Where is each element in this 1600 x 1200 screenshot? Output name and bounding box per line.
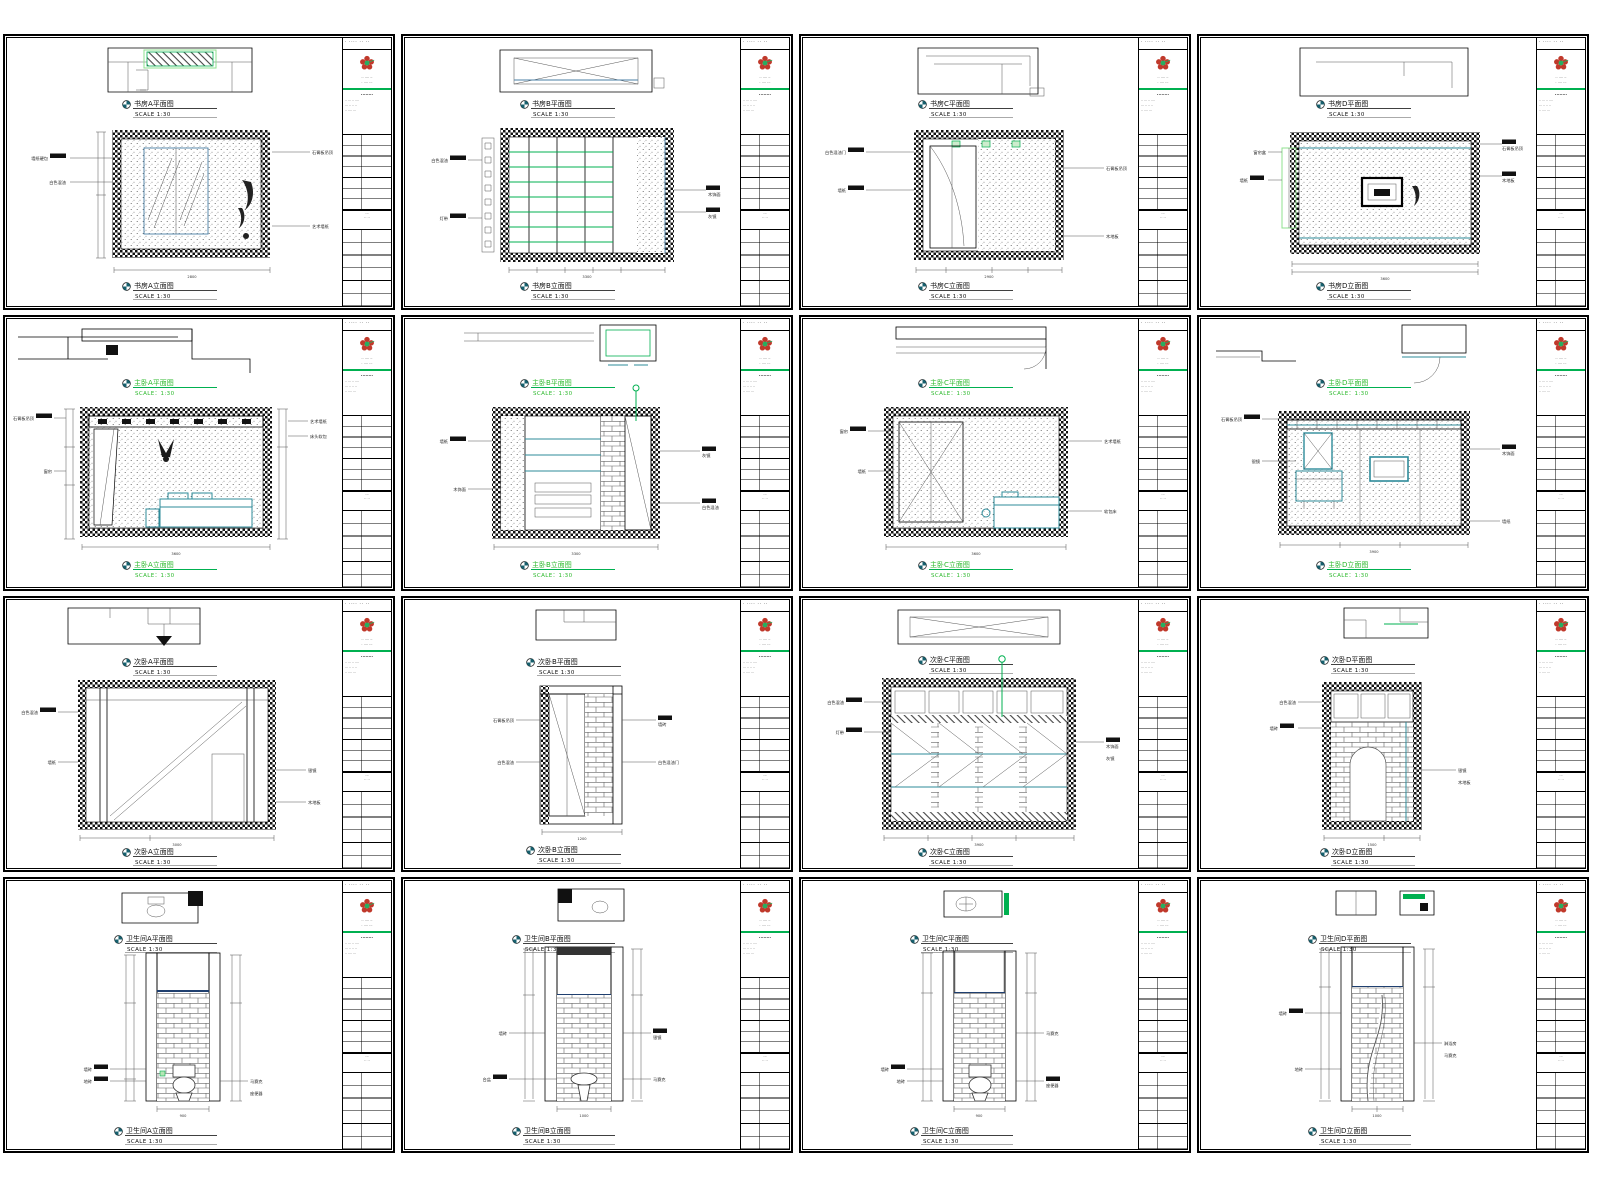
svg-text:书房D平面图: 书房D平面图	[1328, 99, 1368, 108]
sheet-title-bottom: 卫生间B立面图SCALE 1:30	[513, 1126, 615, 1145]
titleblock-mid: ··· ·· ··	[1537, 491, 1585, 511]
titleblock-notes: ·· ··· ·· ···· ··· ·· ·· ·· ·· ···· ···	[1537, 660, 1585, 697]
annotation: 银镜	[308, 767, 317, 774]
flower-logo-icon	[757, 898, 773, 914]
annotation: 银镜	[1458, 767, 1467, 774]
annotation: 白色混油	[702, 504, 719, 511]
sheet-title-bottom: 主卧A立面图SCALE：1:30	[123, 560, 217, 579]
titleblock-header: · ···· ·· ··	[741, 319, 789, 331]
sheet-r2c3: 主卧C平面图SCALE：1:30 窗帘 墙纸 艺术墙纸 软包床 3600 主卧C…	[799, 315, 1191, 591]
plan-drawing	[944, 891, 1009, 917]
drawing-r3c4: 次卧D平面图SCALE 1:30 白色混油 墙砖 银镜 木地板 1500 次卧D…	[1204, 602, 1536, 868]
annotation: 马赛克	[653, 1076, 666, 1083]
titleblock-table-lower	[1537, 511, 1585, 587]
svg-text:次卧D立面图: 次卧D立面图	[1332, 847, 1372, 856]
annotation: 木地板	[1458, 779, 1471, 786]
titleblock-section: ········	[1139, 372, 1187, 379]
titleblock-section: ········	[343, 934, 391, 941]
sheet-r2c4: 主卧D平面图SCALE：1:30 石膏板吊顶 银镜 木饰面 墙纸 3900 主卧…	[1197, 315, 1589, 591]
company-text: ·· ···· ·· · ···· ···	[741, 638, 789, 649]
elevation-drawing	[112, 130, 270, 258]
company-text: ·· ···· ·· · ···· ···	[1139, 357, 1187, 368]
dimension-line	[509, 267, 665, 273]
sheet-r4c2: 卫生间B平面图SCALE 1:30 墙砖 台盆 银镜 马赛克 1000 卫生间B…	[401, 877, 793, 1153]
logo-area	[1537, 612, 1585, 638]
svg-text:书房A平面图: 书房A平面图	[134, 99, 174, 108]
dimension-line	[114, 267, 270, 273]
titleblock-section: ········	[1139, 91, 1187, 98]
sheet-title-top: 主卧A平面图SCALE：1:30	[123, 378, 217, 397]
flower-logo-icon	[757, 55, 773, 71]
titleblock-table-lower	[741, 230, 789, 306]
titleblock-header: · ···· ·· ··	[343, 38, 391, 50]
annotation: 灰镜	[1106, 755, 1115, 762]
dimension-value: 3600	[971, 552, 981, 556]
svg-text:SCALE 1:30: SCALE 1:30	[533, 112, 569, 118]
titleblock-notes: ·· ··· ·· ···· ··· ·· ·· ·· ·· ···· ···	[1139, 98, 1187, 135]
sheet-title-top: 主卧D平面图SCALE：1:30	[1317, 378, 1411, 397]
title-block: · ···· ·· ·· ·· ···· ·· · ···· ··· ·····…	[342, 600, 391, 868]
svg-text:次卧C平面图: 次卧C平面图	[930, 655, 970, 664]
titleblock-mid: ··· ·· ··	[343, 1053, 391, 1073]
titleblock-table-lower	[1139, 230, 1187, 306]
sheet-title-top: 书房C平面图SCALE 1:30	[919, 99, 1013, 118]
annotation: 座便器	[1046, 1082, 1059, 1089]
svg-text:次卧D平面图: 次卧D平面图	[1332, 655, 1372, 664]
titleblock-mid: ··· ·· ··	[741, 1053, 789, 1073]
sheet-border: 次卧C平面图SCALE 1:30 白色混油 灯带 木饰面 灰镜 3900 次卧C…	[802, 599, 1188, 869]
drawing-r2c4: 主卧D平面图SCALE：1:30 石膏板吊顶 银镜 木饰面 墙纸 3900 主卧…	[1204, 321, 1536, 587]
title-block: · ···· ·· ·· ·· ···· ·· · ···· ··· ·····…	[1138, 881, 1187, 1149]
flower-logo-icon	[359, 617, 375, 633]
logo-area	[343, 893, 391, 919]
annotation: 墙砖	[1270, 725, 1278, 732]
dimension-line	[557, 1106, 611, 1112]
svg-text:SCALE 1:30: SCALE 1:30	[923, 1139, 959, 1145]
title-block: · ···· ·· ·· ·· ···· ·· · ···· ··· ·····…	[1138, 600, 1187, 868]
dimension-line	[916, 267, 1062, 273]
titleblock-table-upper	[741, 697, 789, 773]
titleblock-section: ········	[1139, 934, 1187, 941]
svg-text:SCALE 1:30: SCALE 1:30	[931, 860, 967, 866]
annotation: 墙砖	[658, 721, 666, 728]
sheet-r2c2: 主卧B平面图SCALE：1:30 墙纸 木饰面 灰镜 白色混油 3300 主卧B…	[401, 315, 793, 591]
logo-area	[343, 331, 391, 357]
titleblock-table-upper	[1537, 697, 1585, 773]
annotation: 白色混油	[21, 709, 38, 716]
drawing-r4c3: 卫生间C平面图SCALE 1:30 墙砖 地砖 马赛克 座便器 900 卫生间C…	[806, 883, 1138, 1149]
svg-text:次卧A平面图: 次卧A平面图	[134, 657, 174, 666]
sheet-r2c1: 主卧A平面图SCALE：1:30 石膏板吊顶 窗帘 艺术墙纸 床头软包 3600…	[3, 315, 395, 591]
dimension-line	[494, 544, 658, 550]
sheet-border: 书房C平面图SCALE 1:30 白色混油门 墙纸 石膏板吊顶 木地板 2900…	[802, 37, 1188, 307]
titleblock-section: ········	[741, 934, 789, 941]
green-divider	[1139, 931, 1187, 933]
titleblock-table-upper	[1537, 416, 1585, 492]
titleblock-table-upper	[343, 978, 391, 1054]
titleblock-table-upper	[343, 697, 391, 773]
company-text: ·· ···· ·· · ···· ···	[343, 638, 391, 649]
sheet-title-bottom: 主卧D立面图SCALE：1:30	[1317, 560, 1411, 579]
title-block: · ···· ·· ·· ·· ···· ·· · ···· ··· ·····…	[342, 38, 391, 306]
company-text: ·· ···· ·· · ···· ···	[741, 919, 789, 930]
svg-text:SCALE 1:30: SCALE 1:30	[923, 947, 959, 953]
plan-drawing	[1216, 325, 1466, 383]
titleblock-header: · ···· ·· ··	[343, 881, 391, 893]
titleblock-header: · ···· ·· ··	[1139, 600, 1187, 612]
svg-text:SCALE 1:30: SCALE 1:30	[539, 670, 575, 676]
annotation: 灰镜	[702, 452, 711, 459]
annotation: 石膏板吊顶	[1221, 416, 1243, 423]
dimension-line	[1324, 835, 1420, 841]
sheet-title-bottom: 书房D立面图SCALE 1:30	[1317, 281, 1411, 300]
svg-text:SCALE 1:30: SCALE 1:30	[1329, 112, 1365, 118]
sheet-title-bottom: 卫生间C立面图SCALE 1:30	[911, 1126, 1013, 1145]
flower-logo-icon	[359, 55, 375, 71]
elevation-drawing	[884, 407, 1068, 537]
logo-area	[1537, 893, 1585, 919]
logo-area	[1537, 50, 1585, 76]
plan-drawing	[558, 889, 624, 921]
dimension-value: 2900	[984, 275, 994, 279]
drawing-r1c2: 书房B平面图SCALE 1:30 白色混油 灯带 木饰面 灰镜 3300 书房B…	[408, 40, 740, 306]
flower-logo-icon	[1553, 898, 1569, 914]
annotation: 木饰面	[1502, 450, 1515, 457]
titleblock-notes: ·· ··· ·· ···· ··· ·· ·· ·· ·· ···· ···	[1139, 379, 1187, 416]
flower-logo-icon	[1553, 55, 1569, 71]
svg-text:SCALE：1:30: SCALE：1:30	[135, 391, 175, 397]
annotation: 墙纸	[440, 438, 449, 445]
annotation: 银镜	[1252, 458, 1261, 465]
svg-text:次卧B立面图: 次卧B立面图	[538, 845, 578, 854]
company-text: ·· ···· ·· · ···· ···	[1537, 919, 1585, 930]
titleblock-notes: ·· ··· ·· ···· ··· ·· ·· ·· ·· ···· ···	[343, 941, 391, 978]
svg-text:SCALE 1:30: SCALE 1:30	[931, 668, 967, 674]
titleblock-notes: ·· ··· ·· ···· ··· ·· ·· ·· ·· ···· ···	[741, 98, 789, 135]
titleblock-mid: ··· ·· ··	[741, 491, 789, 511]
titleblock-section: ········	[1537, 653, 1585, 660]
company-text: ·· ···· ·· · ···· ···	[343, 357, 391, 368]
titleblock-table-upper	[343, 416, 391, 492]
dimension-line	[1292, 261, 1478, 275]
drawing-r1c4: 书房D平面图SCALE 1:30 窗帘盒 墙纸 石膏板吊顶 木地板 3600 书…	[1204, 40, 1536, 306]
annotation: 软包床	[1104, 508, 1117, 515]
flower-logo-icon	[1155, 898, 1171, 914]
titleblock-table-lower	[343, 511, 391, 587]
elevation-drawing	[1282, 132, 1480, 254]
annotation: 艺术墙纸	[310, 418, 328, 425]
logo-area	[1139, 50, 1187, 76]
sheet-title-top: 卫生间D平面图SCALE 1:30	[1309, 934, 1411, 953]
title-block: · ···· ·· ·· ·· ···· ·· · ···· ··· ·····…	[1138, 319, 1187, 587]
green-divider	[741, 369, 789, 371]
sheet-title-bottom: 次卧A立面图SCALE 1:30	[123, 847, 217, 866]
annotation: 墙纸	[1502, 518, 1511, 525]
sheet-title-bottom: 书房A立面图SCALE 1:30	[123, 281, 217, 300]
titleblock-header: · ···· ·· ··	[1139, 319, 1187, 331]
svg-text:SCALE 1:30: SCALE 1:30	[135, 860, 171, 866]
annotation: 石膏板吊顶	[493, 717, 515, 724]
svg-text:书房B平面图: 书房B平面图	[532, 99, 572, 108]
green-divider	[741, 931, 789, 933]
annotation: 窗帘盒	[1253, 149, 1266, 156]
sheet-r3c4: 次卧D平面图SCALE 1:30 白色混油 墙砖 银镜 木地板 1500 次卧D…	[1197, 596, 1589, 872]
company-text: ·· ···· ·· · ···· ···	[1139, 919, 1187, 930]
sheet-r1c1: 书房A平面图SCALE 1:30 墙纸硬包 白色混油 石膏板吊顶 艺术墙纸 28…	[3, 34, 395, 310]
annotation: 墙砖	[881, 1066, 889, 1073]
elevation-drawing	[146, 953, 220, 1101]
sheet-title-bottom: 次卧B立面图SCALE 1:30	[527, 845, 621, 864]
titleblock-mid: ··· ·· ··	[343, 491, 391, 511]
annotation: 地砖	[1295, 1066, 1303, 1073]
titleblock-table-upper	[741, 135, 789, 211]
title-block: · ···· ·· ·· ·· ···· ·· · ···· ··· ·····…	[1138, 38, 1187, 306]
company-text: ·· ···· ·· · ···· ···	[1537, 76, 1585, 87]
annotation: 白色混油	[1279, 699, 1296, 706]
plan-drawing	[500, 50, 664, 92]
annotation: 石膏板吊顶	[1106, 165, 1128, 172]
titleblock-table-lower	[1537, 792, 1585, 868]
sheet-r4c4: 卫生间D平面图SCALE 1:30 墙砖 地砖 淋浴房 马赛克 1000 卫生间…	[1197, 877, 1589, 1153]
green-divider	[343, 650, 391, 652]
titleblock-notes: ·· ··· ·· ···· ··· ·· ·· ·· ·· ···· ···	[1537, 379, 1585, 416]
dimension-line	[1280, 542, 1468, 548]
title-block: · ···· ·· ·· ·· ···· ·· · ···· ··· ·····…	[342, 881, 391, 1149]
annotation: 石膏板吊顶	[1502, 145, 1524, 152]
sheet-border: 卫生间C平面图SCALE 1:30 墙砖 地砖 马赛克 座便器 900 卫生间C…	[802, 880, 1188, 1150]
plan-drawing	[108, 48, 252, 92]
logo-area	[343, 612, 391, 638]
titleblock-mid: ··· ·· ··	[343, 772, 391, 792]
titleblock-section: ········	[343, 372, 391, 379]
title-block: · ···· ·· ·· ·· ···· ·· · ···· ··· ·····…	[1536, 600, 1585, 868]
titleblock-section: ········	[741, 372, 789, 379]
sheet-title-top: 次卧A平面图SCALE 1:30	[123, 657, 217, 676]
annotation: 墙纸	[48, 759, 57, 766]
titleblock-notes: ·· ··· ·· ···· ··· ·· ·· ·· ·· ···· ···	[343, 98, 391, 135]
logo-area	[1537, 331, 1585, 357]
annotation: 马赛克	[1046, 1030, 1059, 1037]
sheet-r1c2: 书房B平面图SCALE 1:30 白色混油 灯带 木饰面 灰镜 3300 书房B…	[401, 34, 793, 310]
company-text: ·· ···· ·· · ···· ···	[343, 919, 391, 930]
titleblock-section: ········	[343, 653, 391, 660]
annotation: 白色混油	[431, 157, 448, 164]
sheet-border: 书房B平面图SCALE 1:30 白色混油 灯带 木饰面 灰镜 3300 书房B…	[404, 37, 790, 307]
svg-text:次卧C立面图: 次卧C立面图	[930, 847, 970, 856]
dimension-line	[1352, 1106, 1403, 1112]
plan-drawing	[1300, 48, 1468, 96]
flower-logo-icon	[1553, 336, 1569, 352]
dimension-value: 1000	[579, 1114, 589, 1118]
titleblock-section: ········	[1537, 372, 1585, 379]
plan-drawing	[18, 329, 250, 373]
annotation: 石膏板吊顶	[13, 415, 35, 422]
plan-drawing	[68, 608, 200, 646]
svg-text:书房A立面图: 书房A立面图	[134, 281, 174, 290]
titleblock-header: · ···· ·· ··	[1537, 319, 1585, 331]
dimension-value: 2800	[187, 275, 197, 279]
svg-text:SCALE：1:30: SCALE：1:30	[931, 573, 971, 579]
titleblock-section: ········	[1139, 653, 1187, 660]
title-block: · ···· ·· ·· ·· ···· ·· · ···· ··· ·····…	[740, 881, 789, 1149]
green-divider	[1139, 88, 1187, 90]
svg-text:SCALE：1:30: SCALE：1:30	[1329, 391, 1369, 397]
sheet-title-top: 书房A平面图SCALE 1:30	[123, 99, 217, 118]
green-divider	[1139, 650, 1187, 652]
titleblock-section: ········	[343, 91, 391, 98]
title-block: · ···· ·· ·· ·· ···· ·· · ···· ··· ·····…	[740, 600, 789, 868]
titleblock-table-upper	[741, 416, 789, 492]
company-text: ·· ···· ·· · ···· ···	[1139, 76, 1187, 87]
annotation: 床头软包	[310, 433, 328, 440]
sheet-title-top: 次卧B平面图SCALE 1:30	[527, 657, 621, 676]
plan-drawing	[464, 325, 656, 365]
svg-text:SCALE 1:30: SCALE 1:30	[127, 947, 163, 953]
drawing-r4c4: 卫生间D平面图SCALE 1:30 墙砖 地砖 淋浴房 马赛克 1000 卫生间…	[1204, 883, 1536, 1149]
annotation: 淋浴房	[1444, 1040, 1457, 1047]
titleblock-header: · ···· ·· ··	[1537, 38, 1585, 50]
titleblock-notes: ·· ··· ·· ···· ··· ·· ·· ·· ·· ···· ···	[343, 660, 391, 697]
drawing-r2c1: 主卧A平面图SCALE：1:30 石膏板吊顶 窗帘 艺术墙纸 床头软包 3600…	[10, 321, 342, 587]
title-block: · ···· ·· ·· ·· ···· ·· · ···· ··· ·····…	[740, 319, 789, 587]
annotation: 地砖	[84, 1078, 92, 1085]
flower-logo-icon	[359, 898, 375, 914]
sheet-title-bottom: 书房C立面图SCALE 1:30	[919, 281, 1013, 300]
titleblock-notes: ·· ··· ·· ···· ··· ·· ·· ·· ·· ···· ···	[343, 379, 391, 416]
plan-drawing	[898, 610, 1060, 644]
sheet-title-bottom: 主卧B立面图SCALE：1:30	[521, 560, 615, 579]
titleblock-table-lower	[1139, 511, 1187, 587]
sheet-title-top: 卫生间A平面图SCALE 1:30	[115, 934, 217, 953]
logo-area	[1139, 331, 1187, 357]
svg-text:书房C立面图: 书房C立面图	[930, 281, 970, 290]
dimension-line	[157, 1106, 209, 1112]
logo-area	[741, 893, 789, 919]
sheet-r1c3: 书房C平面图SCALE 1:30 白色混油门 墙纸 石膏板吊顶 木地板 2900…	[799, 34, 1191, 310]
sheet-title-top: 次卧D平面图SCALE 1:30	[1321, 655, 1415, 674]
svg-text:书房C平面图: 书房C平面图	[930, 99, 970, 108]
drawing-r2c3: 主卧C平面图SCALE：1:30 窗帘 墙纸 艺术墙纸 软包床 3600 主卧C…	[806, 321, 1138, 587]
titleblock-table-lower	[741, 1073, 789, 1149]
svg-text:SCALE 1:30: SCALE 1:30	[525, 947, 561, 953]
svg-text:卫生间A立面图: 卫生间A立面图	[126, 1126, 173, 1135]
svg-text:SCALE 1:30: SCALE 1:30	[135, 670, 171, 676]
annotation: 木饰面	[1106, 743, 1119, 750]
logo-area	[1139, 612, 1187, 638]
svg-text:SCALE 1:30: SCALE 1:30	[1333, 860, 1369, 866]
dimension-value: 3300	[582, 275, 592, 279]
elevation-drawing	[80, 407, 272, 537]
svg-text:卫生间B立面图: 卫生间B立面图	[524, 1126, 571, 1135]
titleblock-mid: ··· ·· ··	[1139, 210, 1187, 230]
titleblock-mid: ··· ·· ··	[343, 210, 391, 230]
green-divider	[343, 931, 391, 933]
svg-text:主卧A平面图: 主卧A平面图	[134, 378, 174, 387]
titleblock-section: ········	[741, 653, 789, 660]
svg-text:卫生间D立面图: 卫生间D立面图	[1320, 1126, 1367, 1135]
green-divider	[343, 369, 391, 371]
titleblock-table-lower	[1139, 792, 1187, 868]
annotation: 艺术墙纸	[1104, 438, 1122, 445]
annotation: 银镜	[653, 1034, 662, 1041]
svg-text:SCALE：1:30: SCALE：1:30	[135, 573, 175, 579]
dimension-line	[886, 544, 1066, 550]
sheet-border: 次卧B平面图SCALE 1:30 石膏板吊顶 白色混油 墙砖 白色混油门 120…	[404, 599, 790, 869]
sheet-border: 书房A平面图SCALE 1:30 墙纸硬包 白色混油 石膏板吊顶 艺术墙纸 28…	[6, 37, 392, 307]
title-block: · ···· ·· ·· ·· ···· ·· · ···· ··· ·····…	[740, 38, 789, 306]
annotation: 木地板	[1502, 177, 1515, 184]
sheet-border: 主卧A平面图SCALE：1:30 石膏板吊顶 窗帘 艺术墙纸 床头软包 3600…	[6, 318, 392, 588]
green-divider	[1537, 650, 1585, 652]
annotation: 艺术墙纸	[312, 223, 330, 230]
titleblock-table-upper	[1139, 978, 1187, 1054]
green-divider	[343, 88, 391, 90]
titleblock-mid: ··· ·· ··	[741, 772, 789, 792]
dimension-value: 3900	[1369, 550, 1379, 554]
titleblock-table-upper	[741, 978, 789, 1054]
svg-text:SCALE 1:30: SCALE 1:30	[1321, 1139, 1357, 1145]
titleblock-section: ········	[1537, 91, 1585, 98]
company-text: ·· ···· ·· · ···· ···	[741, 357, 789, 368]
company-text: ·· ···· ·· · ···· ···	[741, 76, 789, 87]
company-text: ·· ···· ·· · ···· ···	[1537, 357, 1585, 368]
titleblock-notes: ·· ··· ·· ···· ··· ·· ·· ·· ·· ···· ···	[741, 379, 789, 416]
svg-text:SCALE 1:30: SCALE 1:30	[1321, 947, 1357, 953]
elevation-drawing	[1341, 947, 1414, 1101]
annotation: 窗帘	[840, 428, 848, 435]
sheet-title-bottom: 主卧C立面图SCALE：1:30	[919, 560, 1013, 579]
titleblock-header: · ···· ·· ··	[741, 38, 789, 50]
sheet-title-top: 主卧B平面图SCALE：1:30	[521, 378, 615, 397]
dimension-line	[542, 829, 622, 835]
flower-logo-icon	[359, 336, 375, 352]
svg-text:卫生间A平面图: 卫生间A平面图	[126, 934, 173, 943]
svg-text:SCALE 1:30: SCALE 1:30	[135, 294, 171, 300]
svg-text:SCALE 1:30: SCALE 1:30	[931, 294, 967, 300]
titleblock-header: · ···· ·· ··	[741, 881, 789, 893]
titleblock-mid: ··· ·· ··	[1537, 772, 1585, 792]
titleblock-notes: ·· ··· ·· ···· ··· ·· ·· ·· ·· ···· ···	[1139, 660, 1187, 697]
titleblock-table-upper	[1537, 978, 1585, 1054]
dimension-value: 1000	[1372, 1114, 1382, 1118]
svg-text:主卧B立面图: 主卧B立面图	[532, 560, 572, 569]
titleblock-header: · ···· ·· ··	[1139, 881, 1187, 893]
dimension-line	[884, 835, 1074, 841]
titleblock-table-upper	[1139, 697, 1187, 773]
company-text: ·· ···· ·· · ···· ···	[1537, 638, 1585, 649]
titleblock-table-lower	[343, 792, 391, 868]
titleblock-mid: ··· ·· ··	[1139, 491, 1187, 511]
elevation-drawing	[943, 951, 1016, 1101]
titleblock-table-lower	[741, 792, 789, 868]
svg-text:书房D立面图: 书房D立面图	[1328, 281, 1368, 290]
titleblock-table-upper	[1139, 135, 1187, 211]
sheet-r4c3: 卫生间C平面图SCALE 1:30 墙砖 地砖 马赛克 座便器 900 卫生间C…	[799, 877, 1191, 1153]
annotation: 窗帘	[44, 468, 52, 475]
svg-text:SCALE 1:30: SCALE 1:30	[533, 294, 569, 300]
svg-text:主卧C立面图: 主卧C立面图	[930, 560, 970, 569]
elevation-drawing	[482, 128, 674, 262]
dimension-value: 1500	[1367, 843, 1377, 847]
sheet-title-bottom: 卫生间A立面图SCALE 1:30	[115, 1126, 217, 1145]
svg-text:SCALE：1:30: SCALE：1:30	[931, 391, 971, 397]
flower-logo-icon	[1155, 336, 1171, 352]
annotation: 墙砖	[499, 1030, 507, 1037]
plan-drawing	[1344, 608, 1428, 638]
drawing-r3c3: 次卧C平面图SCALE 1:30 白色混油 灯带 木饰面 灰镜 3900 次卧C…	[806, 602, 1138, 868]
titleblock-notes: ·· ··· ·· ···· ··· ·· ·· ·· ·· ···· ···	[1537, 941, 1585, 978]
annotation: 墙纸	[838, 187, 847, 194]
